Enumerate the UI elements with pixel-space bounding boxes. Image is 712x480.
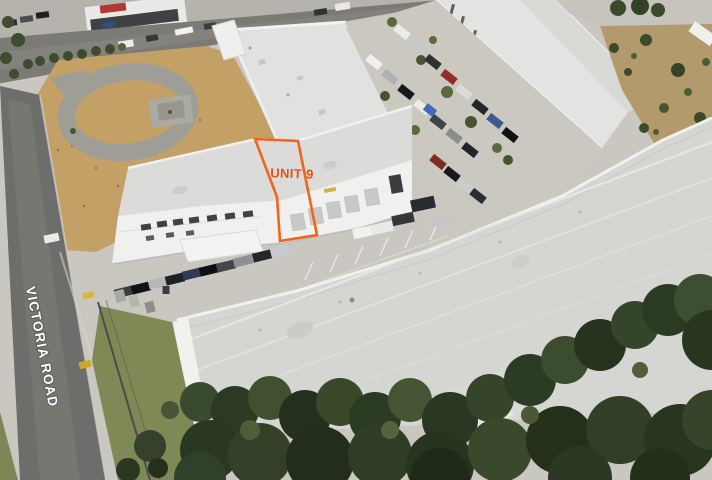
- tree: [91, 46, 101, 56]
- tree: [0, 52, 12, 64]
- tree: [77, 49, 87, 59]
- tree: [9, 69, 19, 79]
- tree: [2, 16, 14, 28]
- tree: [610, 0, 626, 16]
- tree: [49, 53, 59, 63]
- tree: [105, 44, 115, 54]
- tree: [651, 3, 665, 17]
- aerial-photo: VICTORIA ROAD UNIT 9: [0, 0, 712, 480]
- aerial-scene: VICTORIA ROAD UNIT 9: [0, 0, 712, 480]
- roof-stain: [350, 298, 355, 303]
- vent: [287, 94, 290, 97]
- tree: [63, 51, 73, 61]
- tree: [35, 56, 45, 66]
- tree: [11, 33, 25, 47]
- tree: [134, 430, 166, 462]
- bin: [163, 286, 170, 294]
- pad-feature: [168, 110, 172, 114]
- tree: [23, 59, 33, 69]
- tree: [118, 43, 126, 51]
- shrub: [70, 128, 76, 134]
- unit9-label: UNIT 9: [270, 165, 314, 182]
- vent: [249, 47, 252, 50]
- tree: [161, 401, 179, 419]
- tree: [148, 458, 168, 478]
